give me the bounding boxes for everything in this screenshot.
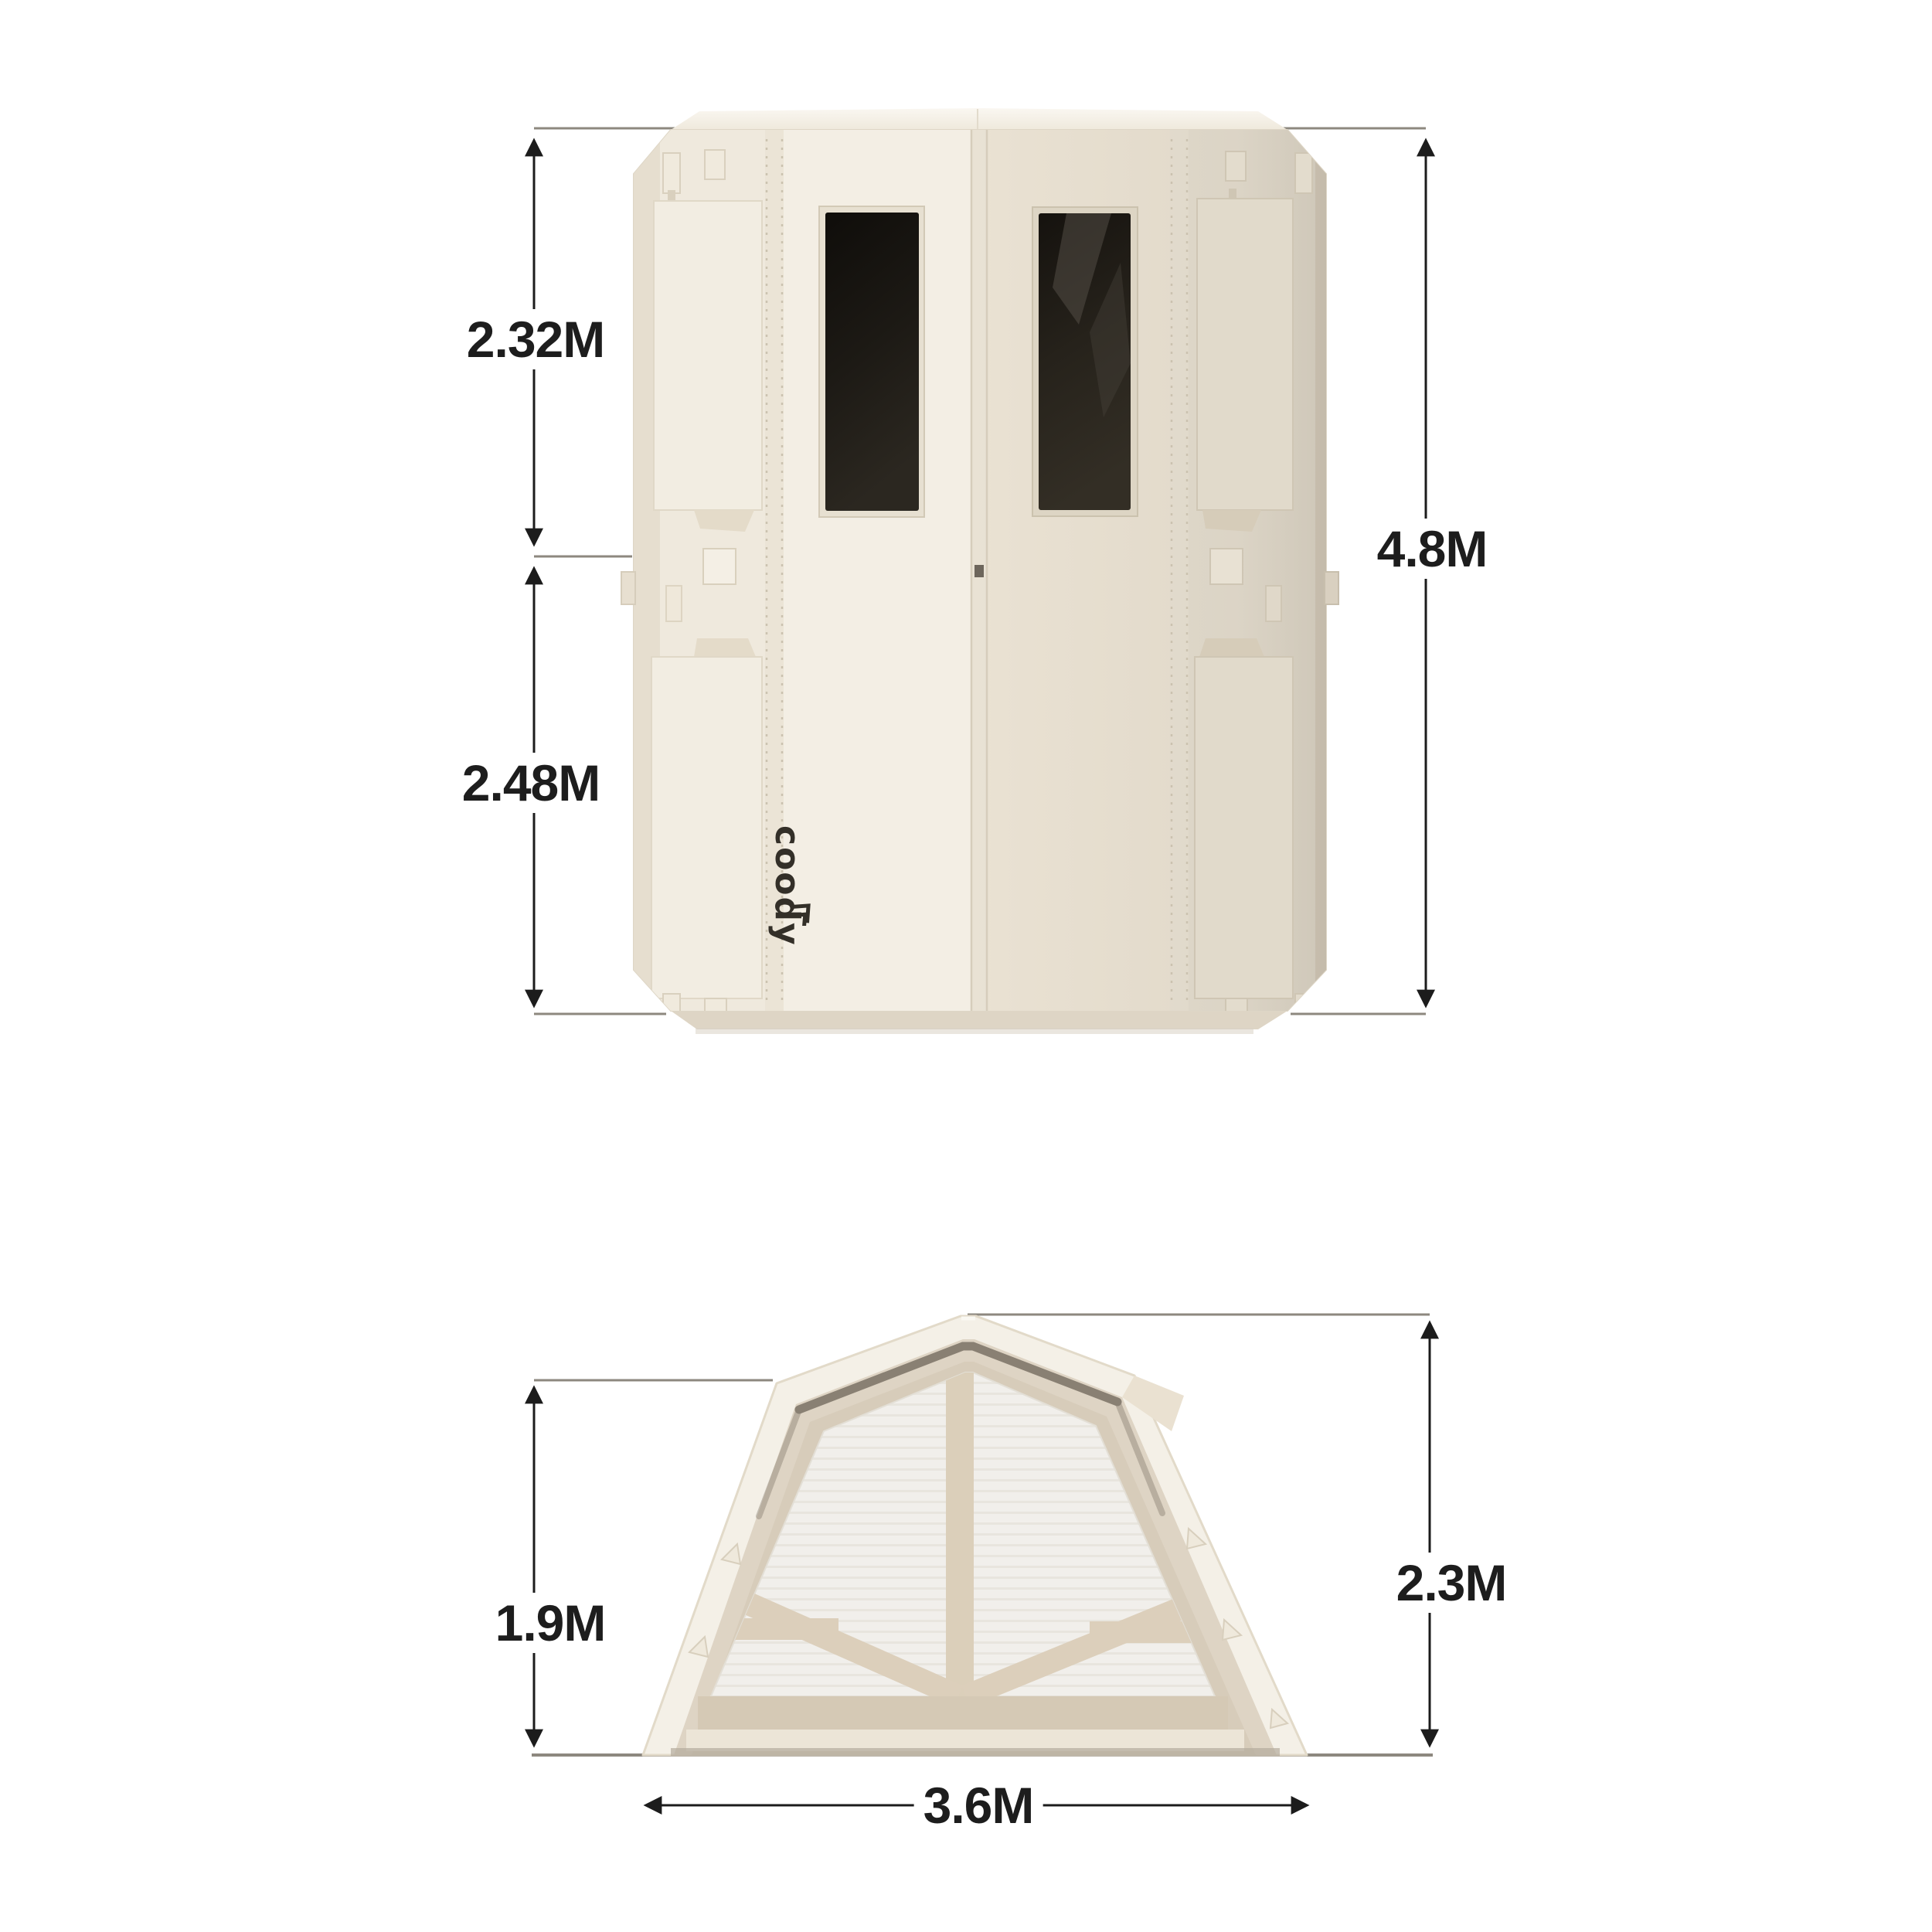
dim-label-folded-upper-height: 2.32M	[457, 309, 614, 369]
fold-latch-mark	[975, 565, 984, 577]
coody-chevron-icon	[788, 896, 818, 926]
coody-logo: coody	[760, 825, 816, 927]
left-window-glass	[825, 213, 919, 511]
package-top-face	[671, 108, 1287, 130]
dim-label-tent-peak-height: 2.3M	[1387, 1553, 1516, 1613]
tent-base-shadow	[671, 1748, 1280, 1756]
coody-wordmark: coody	[770, 825, 804, 947]
left-window	[819, 206, 924, 517]
dim-label-tent-width: 3.6M	[914, 1775, 1043, 1835]
tent-skirt	[686, 1730, 1244, 1751]
right-side-tab	[1325, 572, 1338, 604]
strap-vertical	[946, 1368, 974, 1700]
tent-front-illustration	[643, 1316, 1307, 1756]
product-dimension-sheet: 2.32M 2.48M 4.8M 1.9M 2.3M 3.6M coody	[0, 0, 1932, 1932]
folded-unit-illustration	[621, 108, 1338, 1034]
dim-label-folded-lower-height: 2.48M	[453, 753, 609, 813]
right-rail-panel-upper	[1197, 199, 1293, 510]
dim-label-tent-wall-height: 1.9M	[486, 1593, 615, 1653]
left-side-tab	[621, 572, 635, 604]
dim-label-folded-total-height: 4.8M	[1368, 519, 1497, 579]
left-rail-panel-lower	[651, 657, 762, 998]
tent-bottom-band	[698, 1696, 1228, 1730]
left-fold-buckle	[703, 549, 736, 584]
right-fold-buckle	[1210, 549, 1243, 584]
package-bottom-face	[671, 1011, 1287, 1029]
diagram-artwork	[0, 0, 1932, 1932]
right-window	[1032, 207, 1138, 516]
right-rail-panel-lower	[1195, 657, 1293, 998]
left-rail-panel-upper	[654, 201, 762, 510]
